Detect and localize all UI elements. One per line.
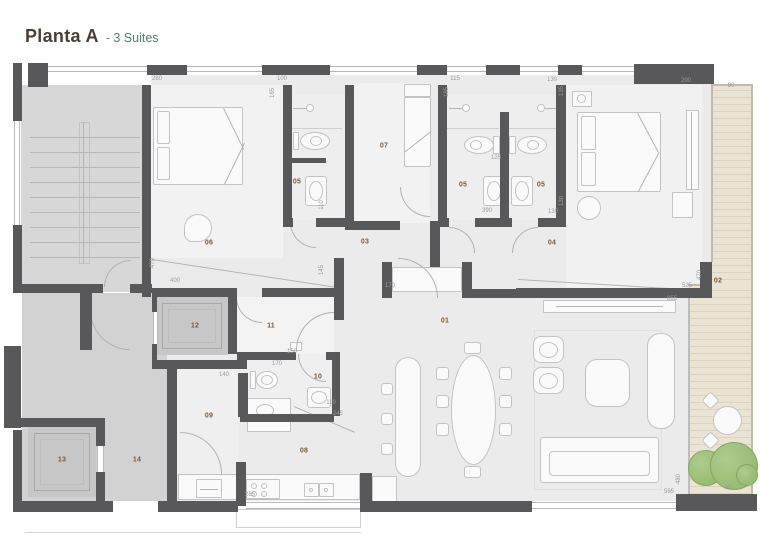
room-label-02: 02 [714,278,722,285]
wall [283,85,292,218]
bed-headboard [404,84,431,97]
stool [381,443,393,455]
wall [326,352,334,360]
wall [334,258,344,320]
armchair-cushion [539,373,558,389]
wall [438,85,447,227]
projection-line [25,532,361,533]
window [447,66,486,72]
window [532,502,676,509]
wall [438,218,449,227]
shower-arm [449,108,462,109]
dimension-label: 100 [277,76,287,82]
toilet-seat [261,375,273,385]
wall [676,494,757,511]
dimension-label: 290 [681,78,691,84]
oven-handle [200,489,218,490]
wall [13,225,22,288]
tree [736,464,758,486]
wall [500,112,509,218]
toilet-tank [509,136,516,154]
window [520,66,558,72]
dining-chair [436,395,449,408]
dimension-label: 150 [287,349,297,355]
tv [556,306,663,307]
window-sill [236,509,361,528]
wardrobe [686,110,699,190]
stair-step [30,242,140,243]
wall [238,373,248,417]
stair-step [30,227,140,228]
room-label-10: 10 [314,374,322,381]
wall [372,501,398,512]
wall [634,64,714,84]
toilet-tank [493,136,500,154]
shower-head [306,104,314,112]
wall [240,414,334,422]
window [153,312,158,344]
dining-chair [436,367,449,380]
room-label-06: 06 [205,240,213,247]
wall [486,65,520,75]
room-label-05b: 05 [459,182,467,189]
side-table [577,196,601,220]
wall [345,221,400,230]
shower-head [462,104,470,112]
window [48,66,147,72]
drain [309,488,313,492]
dining-chair [464,466,481,478]
wall [80,293,92,350]
wall [430,221,440,267]
lamp [577,94,586,103]
dining-table [451,355,496,465]
toilet-seat [470,140,482,150]
dimension-label: 140 [219,372,229,378]
stair-step [30,212,140,213]
dining-chair [436,423,449,436]
room-label-14: 14 [133,457,141,464]
dimension-label: 480 [676,474,682,484]
pillow [581,152,596,186]
wall [130,284,152,293]
dimension-label: 525 [682,283,692,289]
wall [398,501,532,512]
dimension-label: 400 [170,278,180,284]
toilet-tank [293,132,299,150]
dimension-label: 245 [333,411,343,417]
wall [236,462,246,506]
dimension-label: 145 [319,265,325,275]
wall [316,218,345,227]
window [330,66,417,72]
wall [475,218,512,227]
wall [152,344,157,360]
stair-step [30,182,140,183]
dimension-label: 130 [559,196,565,206]
armchair [184,214,212,242]
burner [251,483,257,489]
wall [558,65,582,75]
dimension-label: 595 [664,489,674,495]
wall [516,288,712,298]
dimension-label: 185 [270,88,276,98]
wall [4,346,21,428]
room-label-04: 04 [548,240,556,247]
stool [381,383,393,395]
wall [96,472,105,502]
sofa-seat [549,451,650,476]
bed [404,97,431,167]
wall [417,65,447,75]
dimension-label: 390 [482,208,492,214]
shower-arm [293,108,306,109]
floor-plan-page: Planta A- 3 Suites 010203040505050607080… [0,0,774,549]
wall [13,63,22,121]
wall [13,501,113,512]
wall [20,418,105,427]
wall [262,288,334,297]
tv-cabinet [672,192,693,218]
wall [147,65,187,75]
balcony-rail [751,84,753,494]
stool [381,413,393,425]
room-label-03: 03 [361,239,369,246]
dimension-label: 130 [548,209,558,215]
dimension-label: 110 [319,200,325,210]
dimension-label: 185 [444,87,450,97]
window [97,446,104,472]
dimension-label: 130 [547,77,557,83]
stair-step [30,152,140,153]
armchair-cushion [539,342,558,358]
wall [470,289,516,298]
shower-head [537,104,545,112]
burner [261,491,267,497]
room-label-08: 08 [300,448,308,455]
sink-basin [487,181,501,201]
dining-chair [464,342,481,354]
wall [332,352,340,416]
wall [262,65,330,75]
dimension-label: 90 [728,83,735,89]
dining-chair [499,367,512,380]
dining-chair [499,395,512,408]
burner [261,483,267,489]
toilet-seat [310,136,322,146]
wall [152,297,157,312]
window [582,66,634,72]
wall [13,284,103,293]
dimension-label: 135 [559,86,565,96]
window [246,502,360,509]
room-label-05c: 05 [537,182,545,189]
room-label-13: 13 [58,457,66,464]
room-label-07: 07 [380,143,388,150]
shower-glass [447,128,499,129]
wall [28,63,48,87]
dimension-label: 125 [491,155,501,161]
dining-chair [499,423,512,436]
wall [345,85,354,221]
dimension-label: 110 [326,400,336,406]
stair-rail-line [83,122,84,264]
window [187,66,262,72]
stair-step [30,167,140,168]
toilet-seat [527,140,539,150]
wall [96,418,105,446]
wall [152,288,237,297]
window [14,121,20,225]
floor-plan-canvas: 0102030405050506070809101112131428010018… [0,0,774,549]
kitchen-island [395,357,421,477]
dimension-label: 280 [152,76,162,82]
coffee-table [585,359,630,407]
dimension-label: 170 [272,361,282,367]
balcony-table [713,406,742,435]
stair-landing [30,137,140,138]
shower-glass [292,128,342,129]
sink-basin [515,181,529,201]
room-label-11: 11 [267,323,275,330]
pillow [581,116,596,150]
wall [13,430,22,509]
wall [382,262,392,298]
wall [158,501,238,512]
room-label-05a: 05 [293,179,301,186]
wall [360,473,372,512]
pillow [157,111,170,144]
dimension-label: 115 [450,76,460,82]
wall [228,297,237,354]
wall [152,360,247,369]
dimension-label: 470 [150,258,156,268]
drain [324,488,328,492]
chaise [647,333,675,429]
fridge [372,476,397,503]
stair-step [30,257,140,258]
dimension-label: 470 [697,270,703,280]
wall [292,158,326,163]
pillow [157,147,170,180]
room-label-09: 09 [205,413,213,420]
balcony-deck [712,84,751,286]
dimension-label: 170 [385,283,395,289]
wall [538,218,566,227]
sink-basin [311,391,327,404]
room-label-12: 12 [191,323,199,330]
dimension-label: 265 [245,492,255,498]
wall [283,218,293,227]
shower-glass [509,128,556,129]
dimension-label: 855 [667,296,677,302]
stair-step [30,197,140,198]
room-label-01: 01 [441,318,449,325]
balcony-rail [711,84,713,262]
dimension-label: 65 [725,485,732,491]
sink-basin [309,181,323,201]
wardrobe-line [691,112,692,190]
wall [167,369,177,501]
